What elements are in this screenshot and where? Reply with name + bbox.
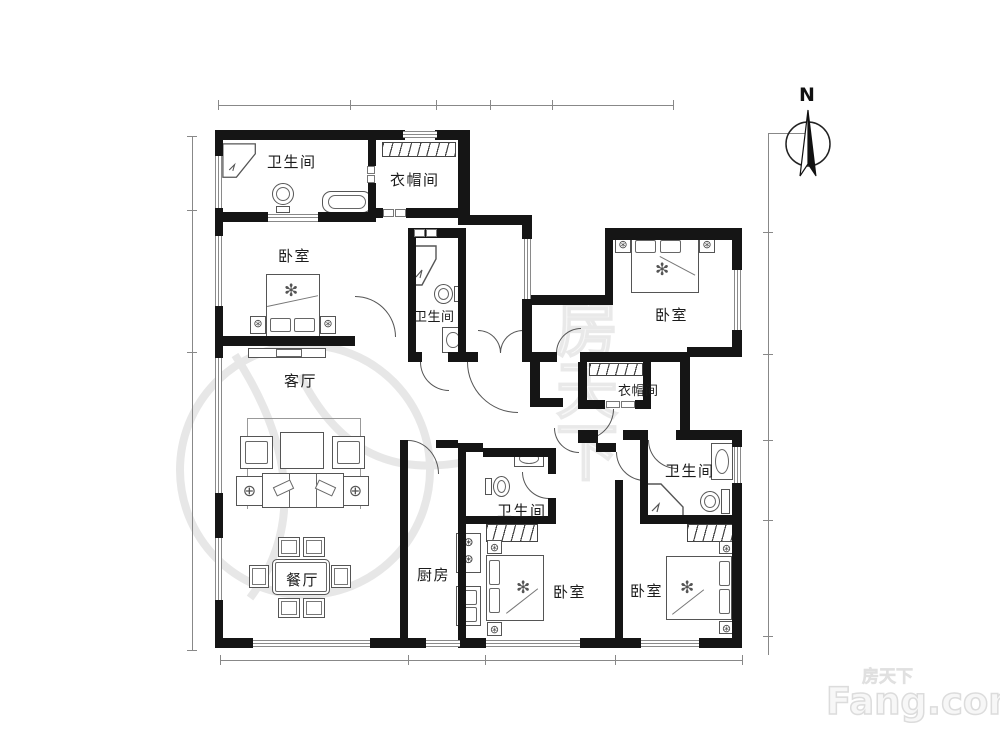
room-label-living: 客厅 [284, 370, 317, 391]
wall [483, 448, 555, 457]
nightstand-icon: ⊛ [487, 622, 502, 636]
room-label-kitchen: 厨房 [417, 564, 450, 585]
shower-icon [222, 142, 258, 180]
window [426, 640, 460, 647]
fang-en-label: Fang.com [826, 680, 1000, 723]
dim-line-left [192, 136, 193, 650]
dim-tick [187, 210, 197, 211]
wall [215, 130, 405, 140]
dim-tick [350, 100, 351, 110]
wall [215, 493, 223, 538]
bed-pillow [719, 561, 730, 586]
dim-tick [490, 100, 491, 110]
door-arc [467, 362, 518, 413]
dim-tick [763, 636, 773, 637]
door-symbol [367, 175, 375, 183]
bed-decor-icon: ✻ [516, 578, 530, 598]
dim-line-top [218, 105, 673, 106]
bathtub-icon [322, 191, 372, 213]
window [403, 131, 437, 138]
room-label-bedroom-w: 卧室 [278, 245, 311, 266]
wall [580, 352, 687, 362]
window [641, 640, 699, 647]
dining-chair [249, 565, 269, 588]
wall [687, 347, 742, 357]
compass-icon [781, 106, 835, 186]
dim-tick [742, 655, 743, 665]
dining-chair [278, 598, 300, 618]
dim-tick [763, 354, 773, 355]
dining-chair [331, 565, 351, 588]
wall [640, 440, 648, 516]
dim-tick [187, 136, 197, 137]
room-label-bath-s: 卫生间 [497, 500, 547, 521]
wall [615, 480, 623, 648]
closet-rod [382, 142, 456, 157]
entry-door-arc [478, 330, 501, 353]
closet-rod [589, 363, 643, 376]
room-label-bedroom-se: 卧室 [630, 580, 663, 601]
tv-icon [276, 349, 302, 357]
window [215, 358, 222, 493]
room-label-cloak-n: 衣帽间 [390, 169, 440, 190]
dim-tick [763, 440, 773, 441]
wall [578, 400, 605, 409]
side-table-icon: ⊕ [236, 476, 263, 506]
wall [408, 228, 416, 362]
wall [522, 352, 557, 362]
floor-plan: 房天下 N [0, 0, 1000, 750]
window [253, 640, 370, 647]
door-symbol [621, 401, 635, 408]
wall [368, 138, 376, 166]
door-symbol [414, 229, 425, 237]
door-sill [268, 214, 318, 222]
wall [580, 638, 641, 648]
nightstand-icon: ⊛ [487, 540, 502, 554]
dim-tick [436, 100, 437, 110]
toilet-icon [271, 183, 295, 213]
wall [623, 430, 648, 440]
wall [596, 443, 616, 452]
wall [376, 208, 383, 218]
wall [732, 483, 742, 648]
dim-line-right [768, 133, 769, 655]
dining-chair [278, 537, 300, 557]
room-label-cloak-e: 衣帽间 [618, 380, 659, 399]
window [215, 236, 222, 306]
room-label-bath-nw: 卫生间 [267, 151, 317, 172]
bed-pillow [489, 588, 500, 613]
door-arc [522, 472, 549, 499]
dim-tick [552, 100, 553, 110]
bed-decor-icon: ✻ [284, 281, 298, 301]
wall [458, 215, 532, 225]
entry-door-arc [500, 330, 523, 353]
dim-tick [485, 655, 486, 665]
room-label-bath-e: 卫生间 [665, 460, 715, 481]
wall [436, 440, 458, 448]
wall [732, 240, 742, 270]
window [734, 270, 741, 330]
dining-chair [303, 598, 325, 618]
dim-tick [673, 100, 674, 110]
window [486, 640, 580, 647]
door-symbol [606, 401, 620, 408]
wall [215, 336, 355, 346]
dim-line-bottom [220, 660, 742, 661]
wall [527, 295, 613, 305]
room-label-bedroom-s: 卧室 [553, 581, 586, 602]
side-table-icon: ⊕ [342, 476, 369, 506]
wall [466, 352, 478, 362]
room-label-dining: 餐厅 [286, 569, 319, 590]
wall [318, 212, 376, 222]
coffee-table [280, 432, 324, 469]
bed-decor-icon: ✻ [655, 260, 669, 280]
wall [408, 352, 422, 362]
dim-tick [408, 655, 409, 665]
window [215, 538, 222, 600]
nightstand-icon: ⊛ [320, 316, 336, 334]
dim-tick [220, 655, 221, 665]
wall [458, 228, 466, 362]
door-symbol [367, 166, 375, 174]
window [734, 447, 741, 483]
bed-pillow [489, 560, 500, 585]
bed-pillow [635, 240, 656, 253]
wall [215, 212, 268, 222]
wall [448, 352, 466, 362]
wall [458, 130, 470, 220]
bed-pillow [294, 318, 315, 332]
door-symbol [426, 229, 437, 237]
wall [215, 638, 253, 648]
toilet-icon [485, 474, 511, 498]
window [215, 156, 222, 208]
dim-tick [187, 650, 197, 651]
door-symbol [395, 209, 406, 217]
bed-decor-icon: ✻ [680, 578, 694, 598]
wall [215, 130, 223, 156]
dim-tick [763, 232, 773, 233]
dining-chair [303, 537, 325, 557]
wall [680, 357, 690, 440]
toilet-icon [700, 489, 732, 514]
armchair [332, 436, 365, 469]
room-label-bedroom-ne: 卧室 [655, 304, 688, 325]
dim-tick [218, 100, 219, 110]
wall [215, 306, 223, 358]
bed-pillow [270, 318, 291, 332]
wall [732, 430, 742, 447]
wall [458, 443, 466, 648]
bed-pillow [719, 589, 730, 614]
compass-north-label: N [799, 84, 815, 106]
dim-tick [187, 352, 197, 353]
wall [522, 225, 532, 239]
fang-corner-watermark: 房天下 Fang.com [826, 662, 1000, 747]
wall [530, 398, 563, 407]
bed-pillow [660, 240, 681, 253]
wall [400, 440, 408, 648]
dim-tick [763, 520, 773, 521]
wall [605, 228, 742, 240]
dim-tick [615, 655, 616, 665]
armchair [240, 436, 273, 469]
wall [578, 430, 598, 443]
window [524, 239, 531, 299]
wall [605, 228, 613, 305]
wall [640, 515, 742, 524]
wall [548, 448, 556, 474]
room-label-bath-mid: 卫生间 [414, 306, 455, 325]
door-symbol [383, 209, 394, 217]
wall [370, 638, 426, 648]
nightstand-icon: ⊛ [250, 316, 266, 334]
door-arc [355, 296, 396, 337]
